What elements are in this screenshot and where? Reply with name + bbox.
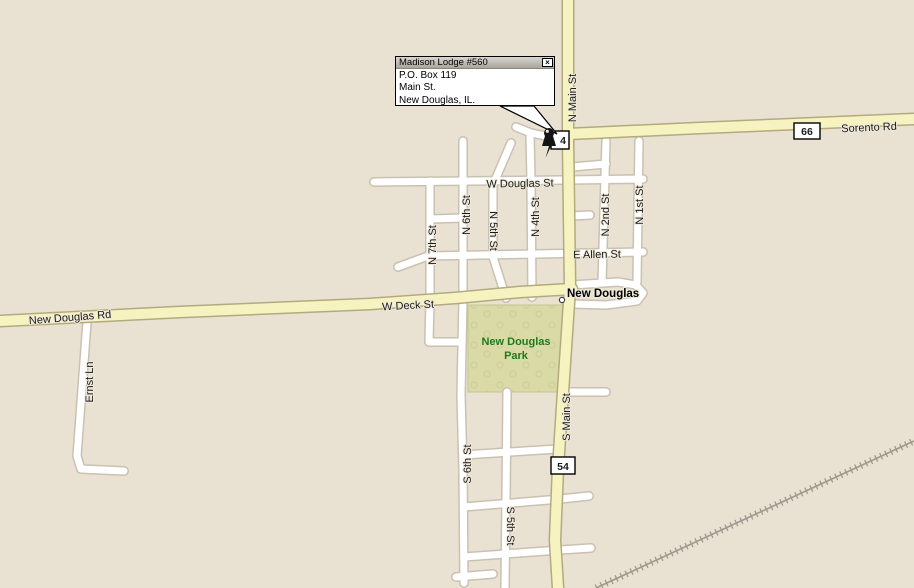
svg-text:66: 66 xyxy=(801,126,813,138)
label-s-6th-st: S 6th St xyxy=(462,444,474,483)
route-54-shield-south: 54 xyxy=(551,457,575,474)
label-n-6th-st: N 6th St xyxy=(461,195,473,235)
town-marker-dot xyxy=(559,297,564,302)
route-66-shield: 66 xyxy=(794,123,820,139)
label-n-main-st: N Main St xyxy=(567,74,579,122)
label-s-main-st: S Main St xyxy=(561,393,573,441)
label-s-5th-st: S 5th St xyxy=(504,506,516,545)
svg-text:4: 4 xyxy=(560,135,566,147)
label-town-new-douglas: New Douglas xyxy=(567,288,639,300)
map-viewport: N Main St S Main St Sorento Rd W Douglas… xyxy=(0,0,914,588)
road-south-cross-4 xyxy=(456,574,493,577)
label-n-5th-st: N 5th St xyxy=(487,211,499,251)
label-n-4th-st: N 4th St xyxy=(530,197,542,237)
callout-address-line: New Douglas, IL. xyxy=(399,95,551,107)
info-callout: Madison Lodge #560 × P.O. Box 119 Main S… xyxy=(395,56,555,106)
new-douglas-park-area xyxy=(468,305,566,392)
road-7th-6th-connector xyxy=(430,218,463,219)
label-w-douglas-st: W Douglas St xyxy=(486,177,553,190)
callout-title: Madison Lodge #560 xyxy=(399,57,488,68)
road-stub-east-1 xyxy=(572,164,606,167)
label-n-7th-st: N 7th St xyxy=(427,225,439,265)
callout-title-bar: Madison Lodge #560 × xyxy=(396,57,554,69)
callout-address-line: P.O. Box 119 xyxy=(399,70,551,82)
road-s-5th-st xyxy=(505,392,507,588)
label-park-line1: New Douglas xyxy=(481,336,550,348)
label-sorento-rd: Sorento Rd xyxy=(841,121,897,135)
label-n-1st-st: N 1st St xyxy=(634,185,646,224)
label-n-2nd-st: N 2nd St xyxy=(600,194,612,237)
label-ernst-ln: Ernst Ln xyxy=(84,362,96,403)
callout-close-button[interactable]: × xyxy=(542,58,553,67)
label-e-allen-st: E Allen St xyxy=(573,249,621,262)
label-park-line2: Park xyxy=(504,350,529,362)
callout-address-line: Main St. xyxy=(399,82,551,94)
svg-text:54: 54 xyxy=(557,461,569,473)
callout-address: P.O. Box 119 Main St. New Douglas, IL. xyxy=(396,69,554,107)
